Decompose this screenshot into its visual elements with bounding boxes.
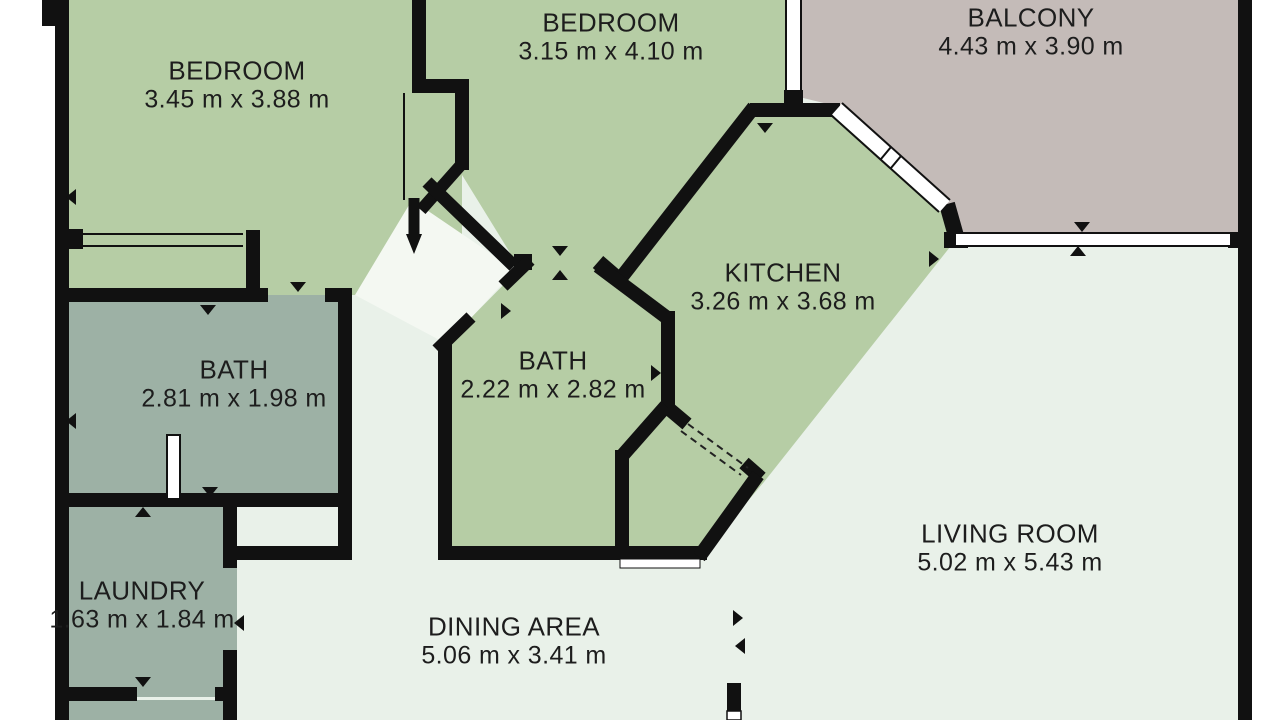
room-name: BALCONY	[938, 3, 1123, 33]
storage-room-floor	[55, 700, 230, 720]
room-dimensions: 2.81 m x 1.98 m	[141, 385, 326, 414]
room-label-balcony: BALCONY 4.43 m x 3.90 m	[938, 3, 1123, 62]
room-label-kitchen: KITCHEN 3.26 m x 3.68 m	[690, 258, 875, 317]
room-name: BEDROOM	[518, 8, 703, 38]
room-dimensions: 3.15 m x 4.10 m	[518, 38, 703, 67]
balcony-door-opening	[956, 232, 1230, 247]
room-name: LIVING ROOM	[917, 519, 1102, 549]
room-name: LAUNDRY	[49, 576, 234, 606]
room-label-bedroom-2: BEDROOM 3.15 m x 4.10 m	[518, 8, 703, 67]
room-dimensions: 3.45 m x 3.88 m	[144, 86, 329, 115]
wall-corner-cap	[42, 0, 68, 26]
entry-wall-stub	[727, 683, 741, 713]
room-dimensions: 5.02 m x 5.43 m	[917, 549, 1102, 578]
room-name: KITCHEN	[690, 258, 875, 288]
room-label-bath-second: BATH 2.22 m x 2.82 m	[460, 346, 645, 405]
room-dimensions: 2.22 m x 2.82 m	[460, 376, 645, 405]
room-label-living-room: LIVING ROOM 5.02 m x 5.43 m	[917, 519, 1102, 578]
floor-plan: BEDROOM 3.45 m x 3.88 m BEDROOM 3.15 m x…	[0, 0, 1280, 720]
entry-door-panel	[727, 711, 741, 720]
room-label-laundry: LAUNDRY 1.63 m x 1.84 m	[49, 576, 234, 635]
room-dimensions: 3.26 m x 3.68 m	[690, 288, 875, 317]
room-name: BATH	[141, 355, 326, 385]
room-dimensions: 1.63 m x 1.84 m	[49, 606, 234, 635]
balcony-side-window	[784, 0, 803, 112]
room-name: BATH	[460, 346, 645, 376]
room-label-dining-area: DINING AREA 5.06 m x 3.41 m	[421, 612, 606, 671]
room-label-bath-main: BATH 2.81 m x 1.98 m	[141, 355, 326, 414]
room-dimensions: 4.43 m x 3.90 m	[938, 33, 1123, 62]
room-name: BEDROOM	[144, 56, 329, 86]
room-name: DINING AREA	[421, 612, 606, 642]
room-label-bedroom-1: BEDROOM 3.45 m x 3.88 m	[144, 56, 329, 115]
room-dimensions: 5.06 m x 3.41 m	[421, 642, 606, 671]
